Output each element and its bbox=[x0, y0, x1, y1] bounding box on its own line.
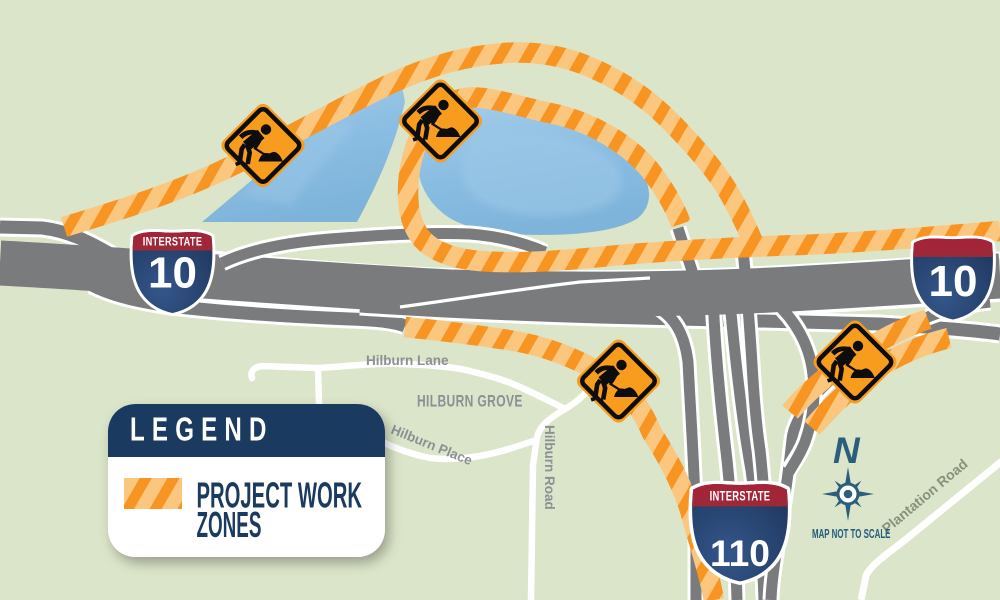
svg-text:N: N bbox=[833, 430, 861, 471]
svg-text:Hilburn Lane: Hilburn Lane bbox=[366, 353, 449, 368]
svg-text:INTERSTATE: INTERSTATE bbox=[710, 488, 771, 504]
svg-text:LEGEND: LEGEND bbox=[130, 412, 274, 449]
svg-text:MAP NOT TO SCALE: MAP NOT TO SCALE bbox=[812, 527, 890, 541]
svg-text:10: 10 bbox=[148, 249, 197, 298]
svg-text:ZONES: ZONES bbox=[197, 506, 262, 546]
svg-text:INTERSTATE: INTERSTATE bbox=[143, 237, 203, 249]
svg-text:110: 110 bbox=[710, 532, 770, 574]
svg-text:10: 10 bbox=[929, 257, 978, 306]
svg-text:Hilburn Road: Hilburn Road bbox=[542, 425, 557, 510]
svg-text:HILBURN GROVE: HILBURN GROVE bbox=[417, 393, 523, 411]
